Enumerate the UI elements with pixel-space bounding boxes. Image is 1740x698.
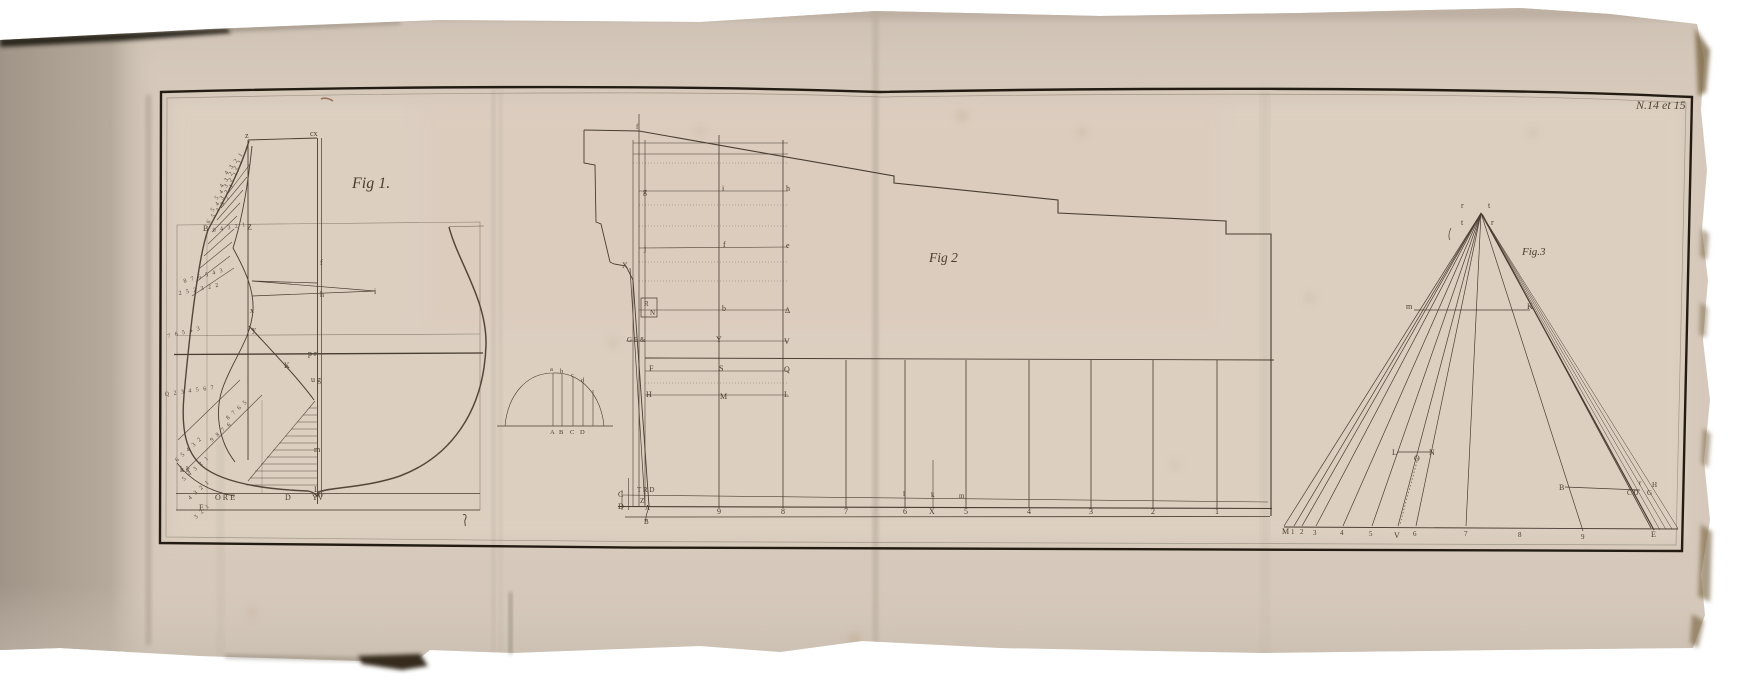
svg-text:7: 7 bbox=[1464, 530, 1468, 538]
svg-text:S: S bbox=[719, 364, 723, 373]
svg-text:V: V bbox=[1394, 531, 1400, 540]
svg-text:y: y bbox=[252, 325, 256, 334]
svg-text:2: 2 bbox=[1300, 528, 1304, 536]
svg-text:4: 4 bbox=[1340, 529, 1344, 537]
svg-text:O: O bbox=[1414, 454, 1420, 463]
svg-text:7: 7 bbox=[844, 507, 848, 516]
svg-text:b: b bbox=[722, 304, 726, 313]
svg-text:9: 9 bbox=[1581, 533, 1585, 541]
svg-text:r: r bbox=[1491, 218, 1494, 227]
svg-text:2: 2 bbox=[1151, 507, 1155, 516]
svg-text:H: H bbox=[646, 390, 652, 399]
svg-text:Z: Z bbox=[247, 223, 252, 232]
svg-text:B: B bbox=[1559, 483, 1564, 492]
svg-text:e: e bbox=[786, 241, 790, 250]
svg-text:C: C bbox=[570, 429, 574, 436]
svg-text:D: D bbox=[618, 502, 624, 511]
svg-text:N: N bbox=[650, 309, 655, 317]
svg-text:M: M bbox=[720, 392, 727, 401]
svg-text:h: h bbox=[320, 290, 324, 299]
svg-text:j: j bbox=[643, 244, 646, 253]
svg-text:H: H bbox=[1652, 481, 1657, 489]
svg-text:Fig 2: Fig 2 bbox=[928, 250, 958, 265]
svg-text:G E &: G E & bbox=[627, 336, 646, 344]
svg-text:N.14 et 15: N.14 et 15 bbox=[1635, 98, 1686, 112]
svg-text:3: 3 bbox=[1313, 529, 1317, 537]
svg-text:D: D bbox=[580, 429, 585, 436]
svg-text:k k: k k bbox=[180, 465, 190, 474]
svg-text:Q: Q bbox=[784, 365, 790, 374]
svg-text:f: f bbox=[320, 258, 323, 267]
svg-text:G: G bbox=[1647, 489, 1652, 497]
svg-text:B: B bbox=[644, 518, 649, 526]
svg-text:k: k bbox=[931, 491, 935, 499]
svg-text:E: E bbox=[199, 503, 204, 512]
svg-text:Z: Z bbox=[640, 497, 644, 505]
svg-text:M: M bbox=[1282, 527, 1289, 536]
svg-text:K: K bbox=[1527, 302, 1533, 311]
svg-text:r: r bbox=[1461, 201, 1464, 210]
svg-text:5: 5 bbox=[1369, 530, 1373, 538]
svg-text:L: L bbox=[784, 390, 789, 399]
svg-text:Δ: Δ bbox=[785, 306, 790, 315]
svg-text:A: A bbox=[645, 504, 650, 512]
svg-text:C: C bbox=[618, 490, 623, 499]
svg-text:cx: cx bbox=[310, 129, 318, 138]
svg-text:m: m bbox=[959, 492, 965, 500]
svg-text:A: A bbox=[550, 429, 555, 436]
svg-text:E: E bbox=[1651, 530, 1656, 539]
svg-text:T R D: T R D bbox=[637, 486, 654, 494]
svg-text:1: 1 bbox=[1291, 528, 1295, 536]
svg-text:F: F bbox=[649, 364, 654, 373]
svg-text:m: m bbox=[1406, 302, 1413, 311]
svg-text:C D: C D bbox=[1627, 489, 1638, 497]
svg-text:3: 3 bbox=[1089, 507, 1093, 516]
svg-text:B: B bbox=[203, 224, 208, 233]
svg-text:f: f bbox=[723, 240, 726, 249]
svg-text:Fig 1.: Fig 1. bbox=[351, 175, 390, 192]
svg-text:8: 8 bbox=[1518, 531, 1522, 539]
svg-text:x: x bbox=[250, 306, 254, 315]
svg-text:z: z bbox=[245, 131, 249, 140]
svg-text:p r: p r bbox=[308, 349, 317, 358]
svg-text:6: 6 bbox=[1413, 530, 1417, 538]
svg-text:Y: Y bbox=[716, 335, 722, 344]
svg-text:X: X bbox=[622, 261, 628, 270]
svg-text:X: X bbox=[929, 507, 935, 516]
svg-text:K: K bbox=[284, 361, 290, 370]
svg-text:YV: YV bbox=[312, 493, 324, 502]
svg-text:L: L bbox=[1392, 448, 1397, 457]
svg-text:h: h bbox=[786, 184, 790, 193]
svg-text:g: g bbox=[643, 187, 647, 196]
svg-text:4: 4 bbox=[1027, 507, 1031, 516]
svg-text:b: b bbox=[560, 368, 563, 375]
svg-text:O R E: O R E bbox=[215, 493, 235, 502]
svg-text:9: 9 bbox=[717, 507, 721, 516]
svg-text:D: D bbox=[285, 493, 291, 502]
svg-text:Fig.3: Fig.3 bbox=[1521, 246, 1546, 258]
svg-text:B: B bbox=[559, 429, 564, 436]
svg-text:a: a bbox=[550, 366, 553, 373]
svg-text:m: m bbox=[314, 445, 321, 454]
svg-text:1: 1 bbox=[1215, 507, 1219, 516]
svg-text:V: V bbox=[784, 337, 790, 346]
svg-text:5: 5 bbox=[964, 507, 968, 516]
svg-text:u g: u g bbox=[311, 375, 321, 384]
svg-text:c: c bbox=[571, 372, 574, 379]
svg-text:N: N bbox=[1429, 448, 1435, 457]
svg-text:R: R bbox=[644, 300, 649, 308]
svg-text:6: 6 bbox=[903, 507, 907, 516]
svg-text:8: 8 bbox=[781, 507, 785, 516]
svg-text:l: l bbox=[903, 490, 905, 498]
